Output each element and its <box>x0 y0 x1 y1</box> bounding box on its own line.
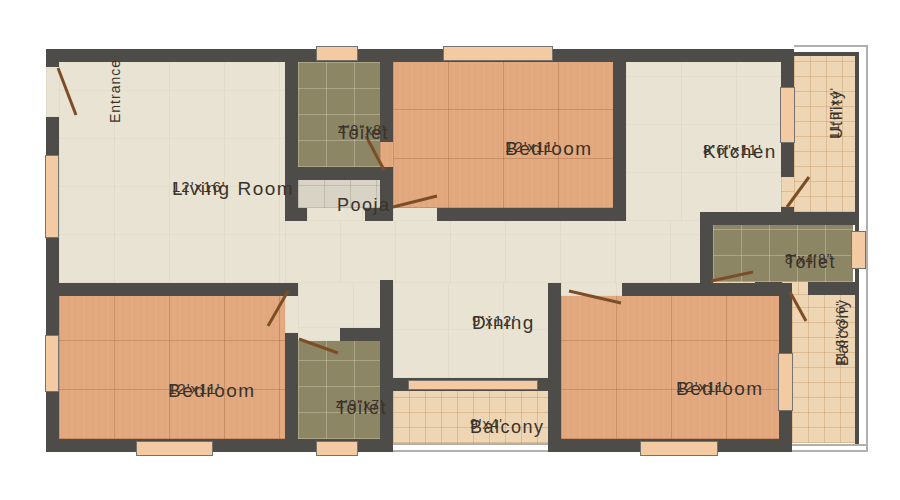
wall-segment <box>700 212 858 225</box>
railing-balcony-right-bottom <box>792 444 866 446</box>
window <box>45 335 59 392</box>
floor-gap <box>298 328 340 341</box>
wall-segment <box>548 283 561 452</box>
floor-toilet-top <box>298 62 380 167</box>
floor-bedroom-top <box>393 62 613 208</box>
window <box>316 46 358 61</box>
window <box>640 441 718 456</box>
wall-segment <box>285 208 307 221</box>
railing-balcony-bottom <box>393 443 548 445</box>
wall-segment <box>285 333 298 452</box>
window <box>45 155 59 238</box>
window <box>778 353 793 411</box>
wall-segment <box>46 283 298 296</box>
floor-gap <box>285 296 298 333</box>
wall-segment <box>613 49 626 221</box>
railing-balcony-bottom <box>393 450 548 452</box>
window <box>136 441 213 456</box>
entrance-label: Entrance <box>107 59 125 123</box>
wall-top <box>46 49 794 62</box>
wall-segment <box>437 208 626 221</box>
floor-corridor <box>298 283 380 328</box>
floor-hallway <box>285 221 700 283</box>
wall-segment <box>380 280 393 452</box>
railing-utility-top <box>794 52 859 56</box>
wall-segment <box>340 328 393 341</box>
railing-line <box>794 45 868 47</box>
window <box>443 46 553 61</box>
railing-balcony-right-bottom <box>792 450 866 452</box>
wall-segment <box>285 167 393 180</box>
floor-gap <box>561 283 622 296</box>
floor-gap <box>626 208 700 221</box>
window-dining-balcony <box>408 380 538 390</box>
window <box>851 231 866 269</box>
wall-segment <box>808 282 858 295</box>
floor-gap <box>781 177 794 207</box>
floor-gap <box>393 208 437 221</box>
floor-toilet-bottom <box>298 341 380 439</box>
railing-line <box>866 45 868 452</box>
floor-gap <box>46 67 59 117</box>
wall-left <box>46 49 59 67</box>
floor-bedroom-right <box>561 296 779 439</box>
window <box>316 441 358 456</box>
floor-living-room <box>59 62 285 283</box>
floor-bedroom-left <box>59 296 285 439</box>
window <box>780 87 795 143</box>
wall-segment <box>622 283 792 296</box>
floor-plan: Entrance Living Room 12'x16' Toilet 4'9"… <box>0 0 900 500</box>
